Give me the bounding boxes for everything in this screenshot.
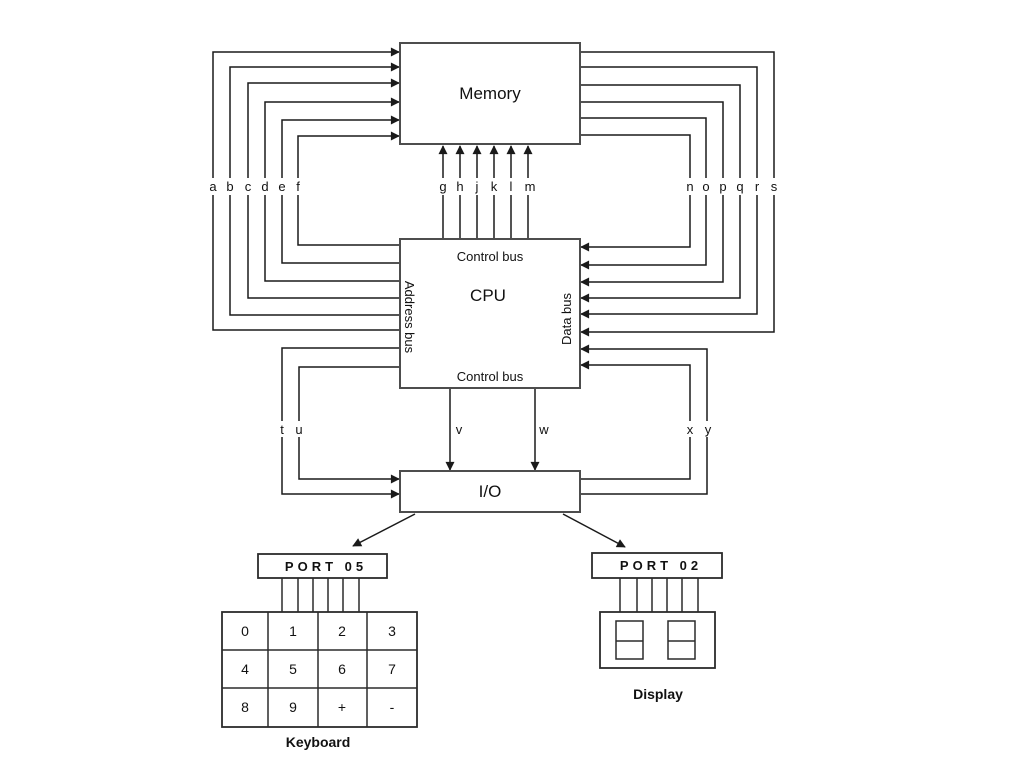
key-minus: - [390,699,395,715]
arrow-to-keyboard-port [353,514,415,546]
bus-letter-t: t [280,422,284,437]
bus-letter-j: j [475,179,479,194]
wire-x [580,365,690,479]
bus-letter-o: o [702,179,709,194]
bus-letter-b: b [226,179,233,194]
bus-letter-w: w [538,422,549,437]
wire-b [230,67,400,315]
bus-letter-k: k [491,179,498,194]
arrow-to-display-port [563,514,625,547]
bus-letter-v: v [456,422,463,437]
memory-label: Memory [459,84,521,103]
bus-letter-r: r [755,179,760,194]
address-bus-label: Address bus [402,281,417,354]
keyboard-block: 0 1 2 3 4 5 6 7 8 9 + - Keyboard [222,612,417,750]
control-bus-bottom-label: Control bus [457,369,524,384]
address-bus-wires [213,52,400,330]
bus-letter-g: g [439,179,446,194]
bus-letter-y: y [705,422,712,437]
display-port-connectors [620,578,698,612]
key-0: 0 [241,623,249,639]
keyboard-port-connectors [282,578,359,612]
wire-a [213,52,400,330]
architecture-diagram: a b c d e f g h j k l m n o p q r s t u … [0,0,1024,768]
bus-letter-u: u [295,422,302,437]
bus-letter-e: e [278,179,285,194]
bus-letter-d: d [261,179,268,194]
key-8: 8 [241,699,249,715]
keyboard-port-block: PORT 05 [258,554,387,612]
display-port-label: PORT 02 [620,558,702,573]
bus-letter-a: a [209,179,217,194]
bus-letter-s: s [771,179,778,194]
wire-u [299,367,400,479]
cpu-block: CPU Control bus Control bus Address bus … [400,239,580,388]
key-2: 2 [338,623,346,639]
memory-block: Memory [400,43,580,144]
display-port-block: PORT 02 [592,553,722,612]
wire-f [298,136,400,245]
display-block: Display [600,612,715,702]
key-6: 6 [338,661,346,677]
bus-letter-p: p [719,179,726,194]
bus-letter-q: q [736,179,743,194]
display-label: Display [633,686,683,702]
bus-letter-m: m [525,179,536,194]
slide-canvas: a b c d e f g h j k l m n o p q r s t u … [0,0,1024,768]
bus-letter-h: h [456,179,463,194]
key-plus: + [338,699,346,715]
key-3: 3 [388,623,396,639]
wire-r [580,67,757,314]
key-5: 5 [289,661,297,677]
bus-letter-n: n [686,179,693,194]
key-9: 9 [289,699,297,715]
key-1: 1 [289,623,297,639]
bus-letter-f: f [296,179,300,194]
io-label: I/O [479,482,502,501]
cpu-label: CPU [470,286,506,305]
bus-letter-x: x [687,422,694,437]
control-bus-top-label: Control bus [457,249,524,264]
io-to-port-arrows [353,514,625,547]
data-bus-label: Data bus [559,292,574,345]
bus-letter-l: l [510,179,513,194]
wire-n [580,135,690,247]
bus-letter-c: c [245,179,252,194]
key-4: 4 [241,661,249,677]
keyboard-label: Keyboard [286,734,351,750]
key-7: 7 [388,661,396,677]
wire-q [580,85,740,298]
keyboard-port-label: PORT 05 [285,559,367,574]
io-block: I/O [400,471,580,512]
